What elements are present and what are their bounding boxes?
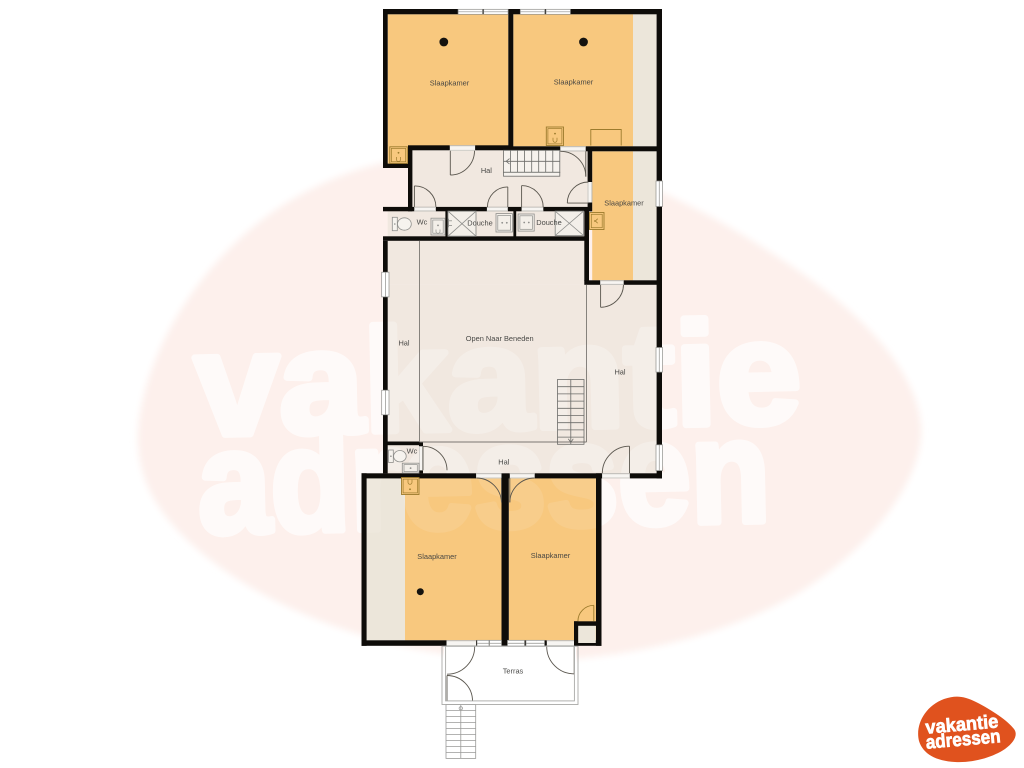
svg-text:Slaapkamer: Slaapkamer xyxy=(417,552,457,561)
svg-text:Hal: Hal xyxy=(398,338,409,347)
svg-text:Wc: Wc xyxy=(407,446,418,455)
svg-text:Terras: Terras xyxy=(503,667,524,676)
svg-text:Slaapkamer: Slaapkamer xyxy=(531,551,571,560)
svg-text:Slaapkamer: Slaapkamer xyxy=(430,79,470,88)
svg-text:Wc: Wc xyxy=(417,217,428,226)
svg-text:Hal: Hal xyxy=(498,457,509,466)
svg-text:Douche: Douche xyxy=(467,218,492,227)
svg-text:Slaapkamer: Slaapkamer xyxy=(604,198,644,207)
svg-text:Hal: Hal xyxy=(481,166,492,175)
svg-text:Douche: Douche xyxy=(536,218,561,227)
svg-text:Slaapkamer: Slaapkamer xyxy=(554,78,594,87)
svg-text:Open Naar Beneden: Open Naar Beneden xyxy=(466,334,534,343)
svg-text:Hal: Hal xyxy=(614,367,625,376)
